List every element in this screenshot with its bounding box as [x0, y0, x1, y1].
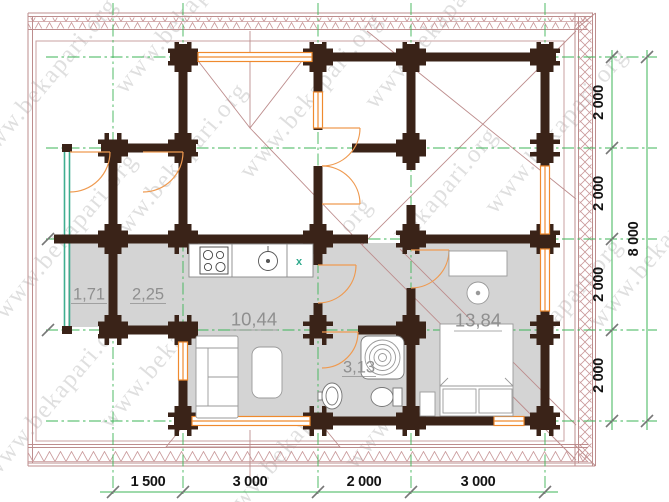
- dim-right-total: 8 000: [626, 221, 642, 256]
- window-right-lower: [541, 249, 550, 311]
- dim-bottom-3: 2 000: [347, 474, 382, 490]
- sofa: [196, 336, 238, 418]
- watermark-text: www.bekapari.org: [479, 42, 633, 219]
- wardrobe: [449, 251, 507, 276]
- room-label: 2,25: [132, 286, 164, 304]
- dim-bottom-1: 1 500: [131, 474, 166, 490]
- kitchen-counter: [189, 244, 313, 277]
- appliance-mark: x: [296, 256, 303, 268]
- window-bottom-small: [494, 417, 524, 426]
- window-left-lower: [179, 342, 188, 380]
- stove-icon: [200, 247, 228, 274]
- window-hall: [314, 92, 323, 128]
- dim-right-3: 2 000: [591, 267, 607, 302]
- window-right-upper: [541, 166, 550, 234]
- floor-plan-canvas: www.bekapari.org www.bekapari.org www.be…: [0, 0, 669, 502]
- dim-right-2: 2 000: [591, 176, 607, 211]
- dim-bottom-4: 3 000: [461, 474, 496, 490]
- room-label: 10,44: [231, 309, 277, 330]
- bedside-table: [420, 392, 435, 416]
- floor-plan-page: www.bekapari.org www.bekapari.org www.be…: [0, 0, 669, 502]
- coffee-table: [252, 347, 282, 398]
- dim-right-1: 2 000: [591, 85, 607, 120]
- bed: [440, 324, 513, 416]
- room-label: 1,71: [73, 286, 105, 304]
- room-label: 3,13: [343, 359, 375, 377]
- dim-right-4: 2 000: [591, 358, 607, 393]
- window-top: [198, 53, 312, 62]
- toilet-icon: [371, 388, 402, 407]
- room-label: 13,84: [455, 310, 501, 331]
- dim-bottom-2: 3 000: [233, 474, 268, 490]
